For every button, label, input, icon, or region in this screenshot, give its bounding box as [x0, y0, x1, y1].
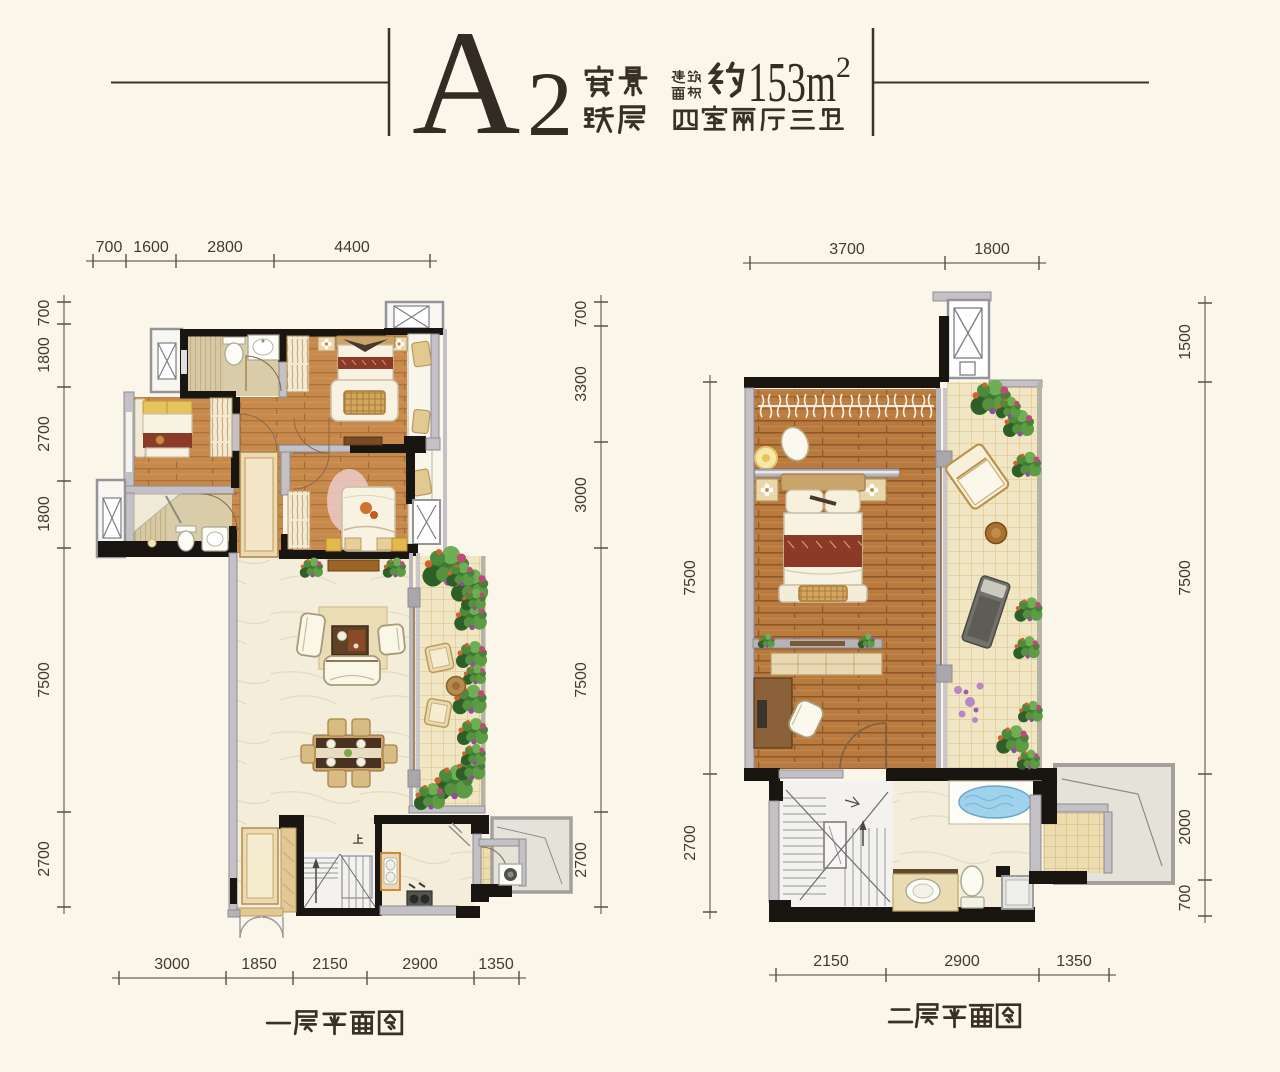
- svg-text:2000: 2000: [1177, 809, 1194, 845]
- svg-text:1350: 1350: [478, 956, 514, 973]
- svg-text:1850: 1850: [241, 956, 277, 973]
- svg-text:2700: 2700: [36, 841, 53, 877]
- svg-text:1600: 1600: [133, 239, 169, 256]
- svg-text:7500: 7500: [1177, 560, 1194, 596]
- svg-text:7500: 7500: [36, 662, 53, 698]
- svg-text:3300: 3300: [573, 366, 590, 402]
- svg-text:700: 700: [96, 239, 123, 256]
- svg-text:1800: 1800: [36, 337, 53, 373]
- svg-text:1350: 1350: [1056, 953, 1092, 970]
- svg-text:3000: 3000: [154, 956, 190, 973]
- svg-text:4400: 4400: [334, 239, 370, 256]
- svg-text:7500: 7500: [573, 662, 590, 698]
- svg-text:2700: 2700: [573, 842, 590, 878]
- svg-text:2700: 2700: [682, 825, 699, 861]
- svg-text:1500: 1500: [1177, 324, 1194, 360]
- svg-text:1800: 1800: [36, 496, 53, 532]
- svg-text:2800: 2800: [207, 239, 243, 256]
- svg-text:3000: 3000: [573, 477, 590, 513]
- svg-text:2150: 2150: [312, 956, 348, 973]
- svg-text:2700: 2700: [36, 416, 53, 452]
- svg-text:700: 700: [36, 300, 53, 327]
- svg-text:2900: 2900: [402, 956, 438, 973]
- svg-text:2: 2: [836, 51, 851, 84]
- svg-text:700: 700: [1177, 885, 1194, 912]
- svg-text:3700: 3700: [829, 241, 865, 258]
- svg-text:1800: 1800: [974, 241, 1010, 258]
- svg-text:153m: 153m: [748, 52, 836, 114]
- svg-text:2900: 2900: [944, 953, 980, 970]
- svg-text:2150: 2150: [813, 953, 849, 970]
- svg-text:A: A: [412, 0, 520, 166]
- svg-text:2: 2: [527, 53, 573, 155]
- svg-text:7500: 7500: [682, 560, 699, 596]
- svg-text:700: 700: [573, 301, 590, 328]
